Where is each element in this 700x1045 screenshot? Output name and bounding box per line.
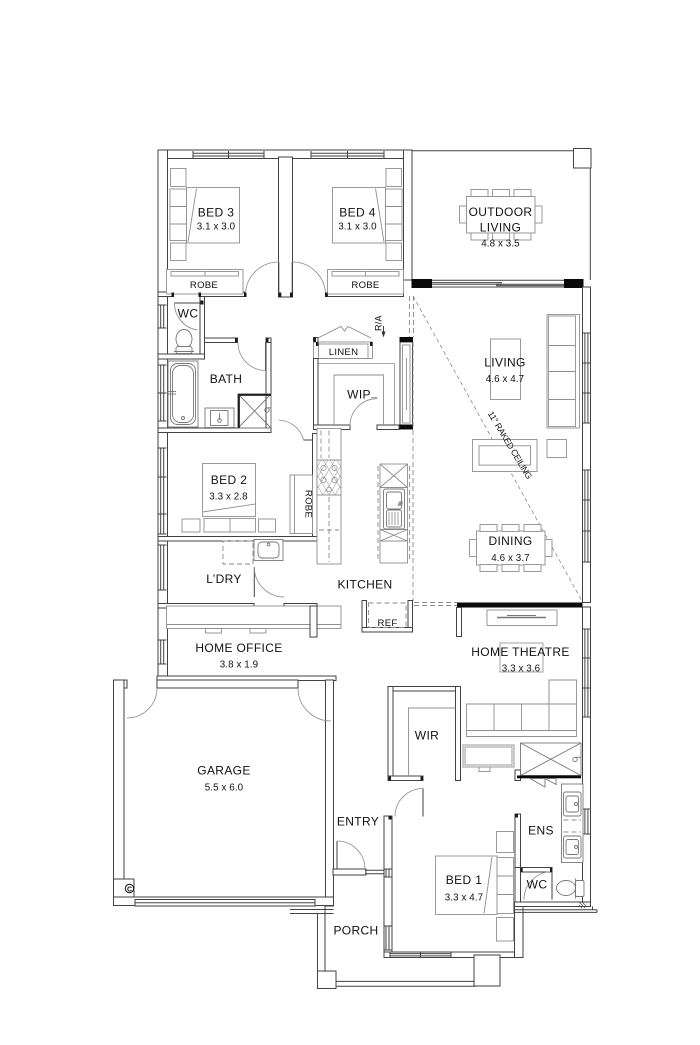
svg-text:KITCHEN: KITCHEN (337, 578, 392, 592)
svg-text:ROBE: ROBE (351, 280, 379, 291)
svg-text:WC: WC (527, 878, 548, 892)
svg-text:4.6 x 4.7: 4.6 x 4.7 (486, 374, 524, 385)
svg-text:LIVING: LIVING (480, 221, 521, 235)
svg-text:ENTRY: ENTRY (337, 815, 379, 829)
svg-text:3.1 x 3.0: 3.1 x 3.0 (338, 222, 377, 233)
svg-text:5.5 x 6.0: 5.5 x 6.0 (205, 783, 244, 794)
svg-text:ROBE: ROBE (303, 490, 314, 518)
svg-text:C: C (127, 886, 132, 893)
svg-text:BED 3: BED 3 (198, 206, 234, 220)
svg-text:DINING: DINING (488, 534, 532, 548)
svg-text:LINEN: LINEN (329, 347, 359, 358)
svg-text:R/A: R/A (374, 315, 384, 331)
svg-text:3.3 x 4.7: 3.3 x 4.7 (445, 893, 483, 904)
svg-text:LIVING: LIVING (484, 356, 525, 370)
svg-text:REF: REF (378, 618, 398, 629)
svg-text:BED 1: BED 1 (446, 873, 482, 887)
svg-text:L’DRY: L’DRY (206, 572, 242, 586)
svg-text:4.8 x 3.5: 4.8 x 3.5 (481, 239, 520, 250)
svg-text:HOME OFFICE: HOME OFFICE (195, 641, 282, 655)
svg-text:BED 2: BED 2 (211, 473, 247, 487)
svg-text:HOME THEATRE: HOME THEATRE (471, 645, 569, 659)
svg-text:OUTDOOR: OUTDOOR (469, 205, 533, 219)
svg-text:4.6 x 3.7: 4.6 x 3.7 (491, 553, 529, 564)
svg-text:PORCH: PORCH (333, 924, 378, 938)
svg-text:WIP: WIP (347, 388, 371, 402)
svg-text:WC: WC (178, 307, 199, 321)
svg-text:3.1 x 3.0: 3.1 x 3.0 (197, 222, 236, 233)
svg-text:BED 4: BED 4 (339, 206, 375, 220)
svg-text:3.3 x 2.8: 3.3 x 2.8 (209, 492, 248, 503)
svg-text:ENS: ENS (528, 824, 554, 838)
svg-text:ROBE: ROBE (190, 280, 218, 291)
svg-text:GARAGE: GARAGE (197, 764, 250, 778)
svg-text:3.3 x 3.6: 3.3 x 3.6 (502, 664, 541, 675)
svg-text:BATH: BATH (210, 372, 243, 386)
svg-text:3.8 x 1.9: 3.8 x 1.9 (220, 660, 258, 671)
svg-text:WIR: WIR (415, 729, 439, 743)
